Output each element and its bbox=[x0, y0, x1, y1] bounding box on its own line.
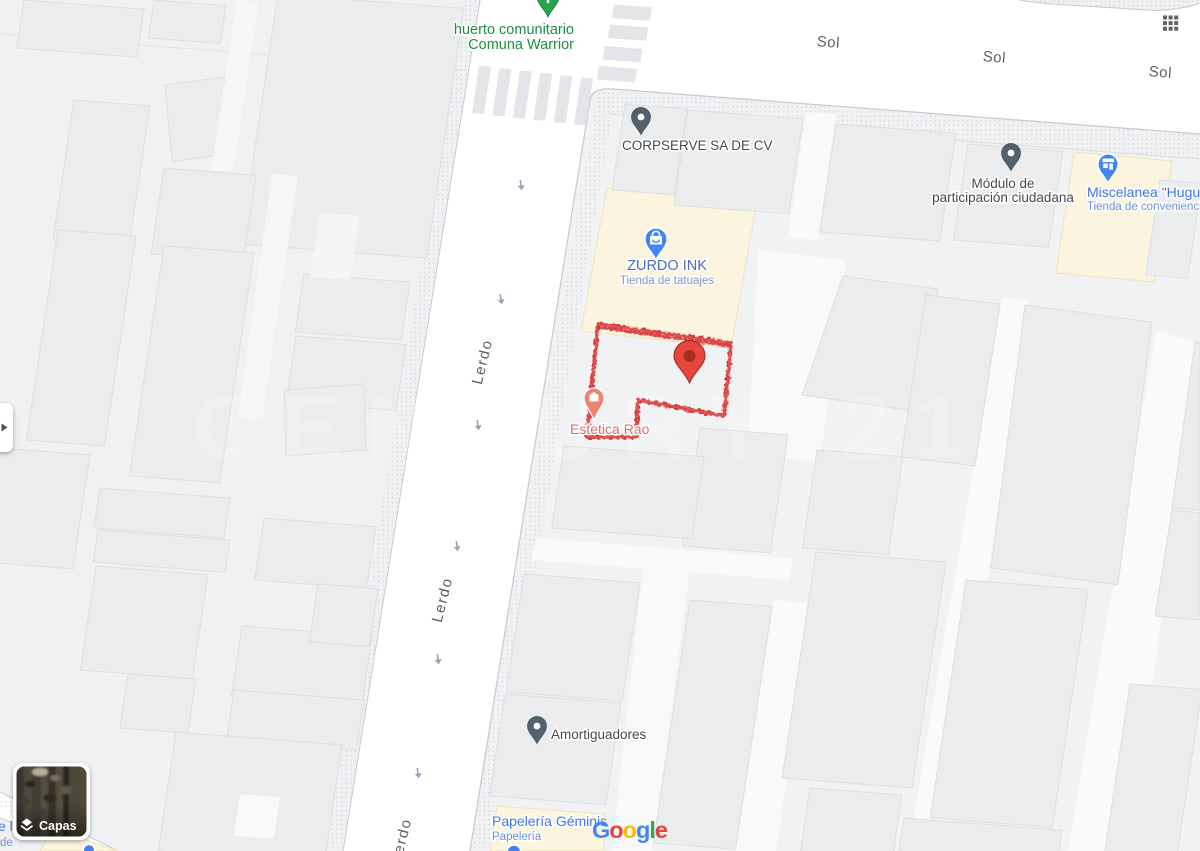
svg-text:Sol: Sol bbox=[1148, 63, 1172, 82]
svg-text:Módulo de: Módulo de bbox=[971, 176, 1034, 191]
svg-text:Google: Google bbox=[592, 817, 668, 843]
svg-text:Tienda de conveniencia: Tienda de conveniencia bbox=[1087, 201, 1200, 213]
svg-text:CORPSERVE SA DE CV: CORPSERVE SA DE CV bbox=[622, 138, 773, 153]
svg-text:ZURDO INK: ZURDO INK bbox=[627, 258, 707, 274]
svg-text:Tienda de tatuajes: Tienda de tatuajes bbox=[620, 275, 714, 287]
svg-text:Estetica Rao: Estetica Rao bbox=[570, 421, 650, 437]
svg-text:e l: e l bbox=[0, 818, 13, 834]
svg-text:Amortiguadores: Amortiguadores bbox=[551, 727, 647, 742]
svg-text:Capas: Capas bbox=[39, 819, 77, 833]
svg-text:Papelería Géminis: Papelería Géminis bbox=[492, 813, 607, 829]
svg-text:Papelería: Papelería bbox=[492, 831, 542, 843]
svg-text:huerto comunitario: huerto comunitario bbox=[454, 22, 574, 38]
svg-text:Sol: Sol bbox=[816, 33, 840, 52]
svg-text:de: de bbox=[0, 837, 13, 849]
svg-text:Sol: Sol bbox=[982, 48, 1006, 67]
svg-text:Comuna Warrior: Comuna Warrior bbox=[468, 37, 574, 53]
svg-text:Miscelanea "Hugui: Miscelanea "Hugui bbox=[1087, 184, 1200, 200]
svg-text:participación ciudadana: participación ciudadana bbox=[932, 190, 1074, 205]
